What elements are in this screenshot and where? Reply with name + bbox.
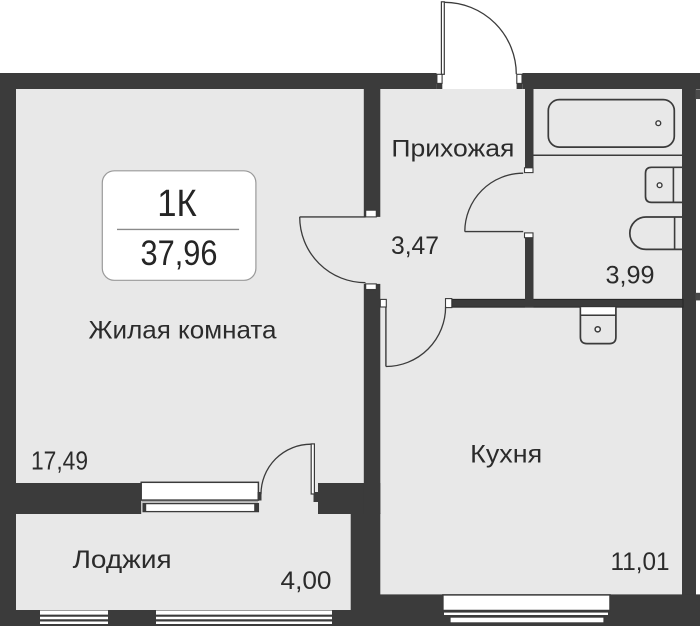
svg-text:Лоджия: Лоджия [73,546,172,574]
svg-text:Жилая комната: Жилая комната [89,317,277,345]
svg-text:Кухня: Кухня [470,441,542,469]
svg-text:1К: 1К [157,183,197,225]
svg-text:37,96: 37,96 [141,234,218,273]
svg-text:11,01: 11,01 [611,548,670,576]
svg-text:Прихожая: Прихожая [391,136,514,163]
svg-text:3,99: 3,99 [606,262,655,290]
svg-text:4,00: 4,00 [281,567,332,595]
svg-text:17,49: 17,49 [31,446,88,476]
svg-text:3,47: 3,47 [391,232,439,260]
